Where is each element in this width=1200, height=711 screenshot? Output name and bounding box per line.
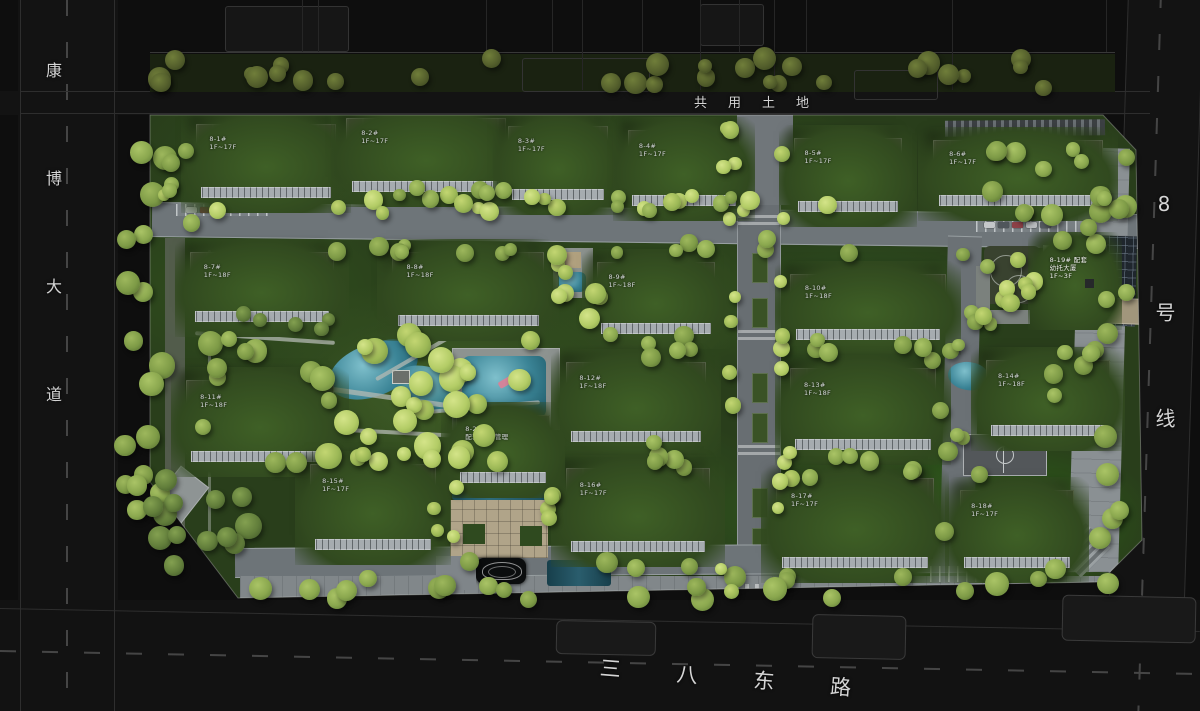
crosswalk — [738, 443, 780, 455]
building-facade — [195, 311, 329, 322]
building-label: 8-15# 1F~17F — [322, 477, 349, 493]
building-label: 8-16# 1F~17F — [580, 481, 607, 497]
north-boundary-line — [150, 52, 1115, 53]
building-label: 8-5# 1F~17F — [805, 149, 832, 165]
tree — [127, 500, 146, 519]
building-facade — [798, 201, 898, 212]
building-label: 8-4# 1F~17F — [639, 142, 666, 158]
parked-car — [1040, 222, 1051, 228]
building-b15: 8-15# 1F~17F — [310, 464, 436, 542]
building-b14: 8-14# 1F~18F — [986, 360, 1110, 428]
building-label: 8-3# 1F~17F — [518, 137, 545, 153]
building-b10: 8-10# 1F~18F — [790, 274, 946, 332]
building-facade — [796, 329, 941, 340]
building-facade — [964, 557, 1069, 568]
building-b13: 8-13# 1F~18F — [790, 368, 936, 442]
building-label: 8-7# 1F~18F — [204, 263, 231, 279]
building-b04: 8-4# 1F~17F — [628, 130, 740, 198]
building-facade — [795, 439, 930, 450]
building-b16: 8-16# 1F~17F — [566, 468, 710, 544]
tree — [130, 141, 153, 164]
building-b02: 8-2# 1F~17F — [346, 118, 506, 184]
building-label: 8-2# 1F~17F — [361, 129, 388, 145]
roadside-structure — [1062, 595, 1197, 644]
building-b17: 8-17# 1F~17F — [776, 478, 934, 560]
building-b12: 8-12# 1F~18F — [566, 362, 706, 434]
north-road-curb — [20, 113, 1150, 114]
adjacent-building-outline — [225, 6, 349, 52]
tree — [148, 526, 173, 551]
building-label: 8-6# 1F~17F — [949, 150, 976, 166]
building-label: 8-10# 1F~18F — [805, 284, 832, 300]
planting-bed-outline — [854, 70, 938, 100]
building-b11: 8-11# 1F~18F — [186, 380, 334, 454]
building-b05: 8-5# 1F~17F — [794, 138, 902, 204]
tree — [116, 271, 140, 295]
building-facade — [512, 189, 604, 200]
skylight — [1085, 279, 1094, 288]
building-facade — [939, 195, 1097, 206]
building-label: 8-19# 配套 幼托大厦 1F~3F — [1050, 256, 1088, 280]
site-plan-canvas: 8-1# 1F~17F8-2# 1F~17F8-3# 1F~17F8-4# 1F… — [0, 0, 1200, 711]
building-label: 8-13# 1F~18F — [804, 381, 831, 397]
tree — [168, 526, 186, 544]
building-facade — [601, 323, 710, 334]
tree — [124, 331, 144, 351]
building-b18: 8-18# 1F~17F — [960, 490, 1074, 560]
building-facade — [315, 539, 432, 550]
building-facade — [782, 557, 929, 568]
building-facade — [991, 425, 1106, 436]
parked-car — [1026, 222, 1037, 228]
building-label: 8-1# 1F~17F — [209, 135, 236, 151]
building-facade — [352, 181, 501, 192]
building-b07: 8-7# 1F~18F — [190, 252, 334, 314]
building-b06: 8-6# 1F~17F — [933, 140, 1103, 198]
adjacent-building-outline — [700, 4, 764, 46]
l-shaped-walkway — [976, 310, 1030, 324]
west-road-centerline — [66, 0, 68, 711]
building-label: 8-21# 配套 物业管理 — [465, 425, 508, 441]
building-label: 8-18# 1F~17F — [971, 502, 998, 518]
gate-canopy-line — [488, 566, 516, 578]
building-b09: 8-9# 1F~18F — [597, 262, 715, 326]
courtyard-pavilion — [557, 252, 581, 268]
road-median-planter — [752, 373, 768, 403]
building-label: 8-11# 1F~18F — [200, 393, 227, 409]
road-label-east: 8号线 — [1150, 192, 1179, 514]
crosswalk — [738, 328, 780, 340]
building-label: 8-9# 1F~18F — [608, 273, 635, 289]
road-label-west: 康博大道 — [40, 62, 64, 494]
building-facade — [201, 187, 331, 198]
building-facade — [632, 195, 735, 206]
building-label: 8-17# 1F~17F — [791, 492, 818, 508]
building-prop: 8-21# 配套 物业管理 — [456, 415, 550, 475]
tree — [164, 555, 185, 576]
tree — [117, 230, 137, 250]
west-road-curb — [114, 0, 115, 711]
building-facade — [571, 431, 701, 442]
road-median-planter — [752, 413, 768, 443]
bus-bay — [556, 620, 657, 656]
north-road — [0, 91, 1200, 115]
building-b08: 8-8# 1F~18F — [392, 252, 544, 318]
entry-planter — [463, 524, 485, 544]
building-label: 8-8# 1F~18F — [407, 263, 434, 279]
parked-car — [998, 222, 1009, 228]
tree — [956, 582, 974, 600]
tree — [116, 475, 136, 495]
tree — [127, 475, 148, 496]
tree — [143, 496, 163, 516]
building-label: 8-14# 1F~18F — [998, 372, 1025, 388]
building-facade — [571, 541, 705, 552]
entry-planter — [520, 526, 542, 546]
building-b03: 8-3# 1F~17F — [508, 126, 608, 192]
parked-car — [1012, 222, 1023, 228]
tree — [134, 465, 153, 484]
west-road-curb — [20, 0, 21, 711]
park-pavilion — [392, 370, 410, 384]
road-label-north: 共用土地 — [694, 92, 830, 111]
building-label: 8-12# 1F~18F — [579, 374, 606, 390]
road-median-planter — [752, 253, 768, 283]
building-facade — [398, 315, 539, 326]
building-b01: 8-1# 1F~17F — [196, 124, 336, 190]
tree — [133, 282, 153, 302]
parked-car — [984, 222, 995, 228]
building-kg: 8-19# 配套 幼托大厦 1F~3F — [1043, 245, 1107, 307]
building-facade — [460, 472, 547, 483]
planting-bed-outline — [522, 58, 650, 92]
road-median-planter — [752, 298, 768, 328]
bus-bay — [812, 614, 907, 660]
